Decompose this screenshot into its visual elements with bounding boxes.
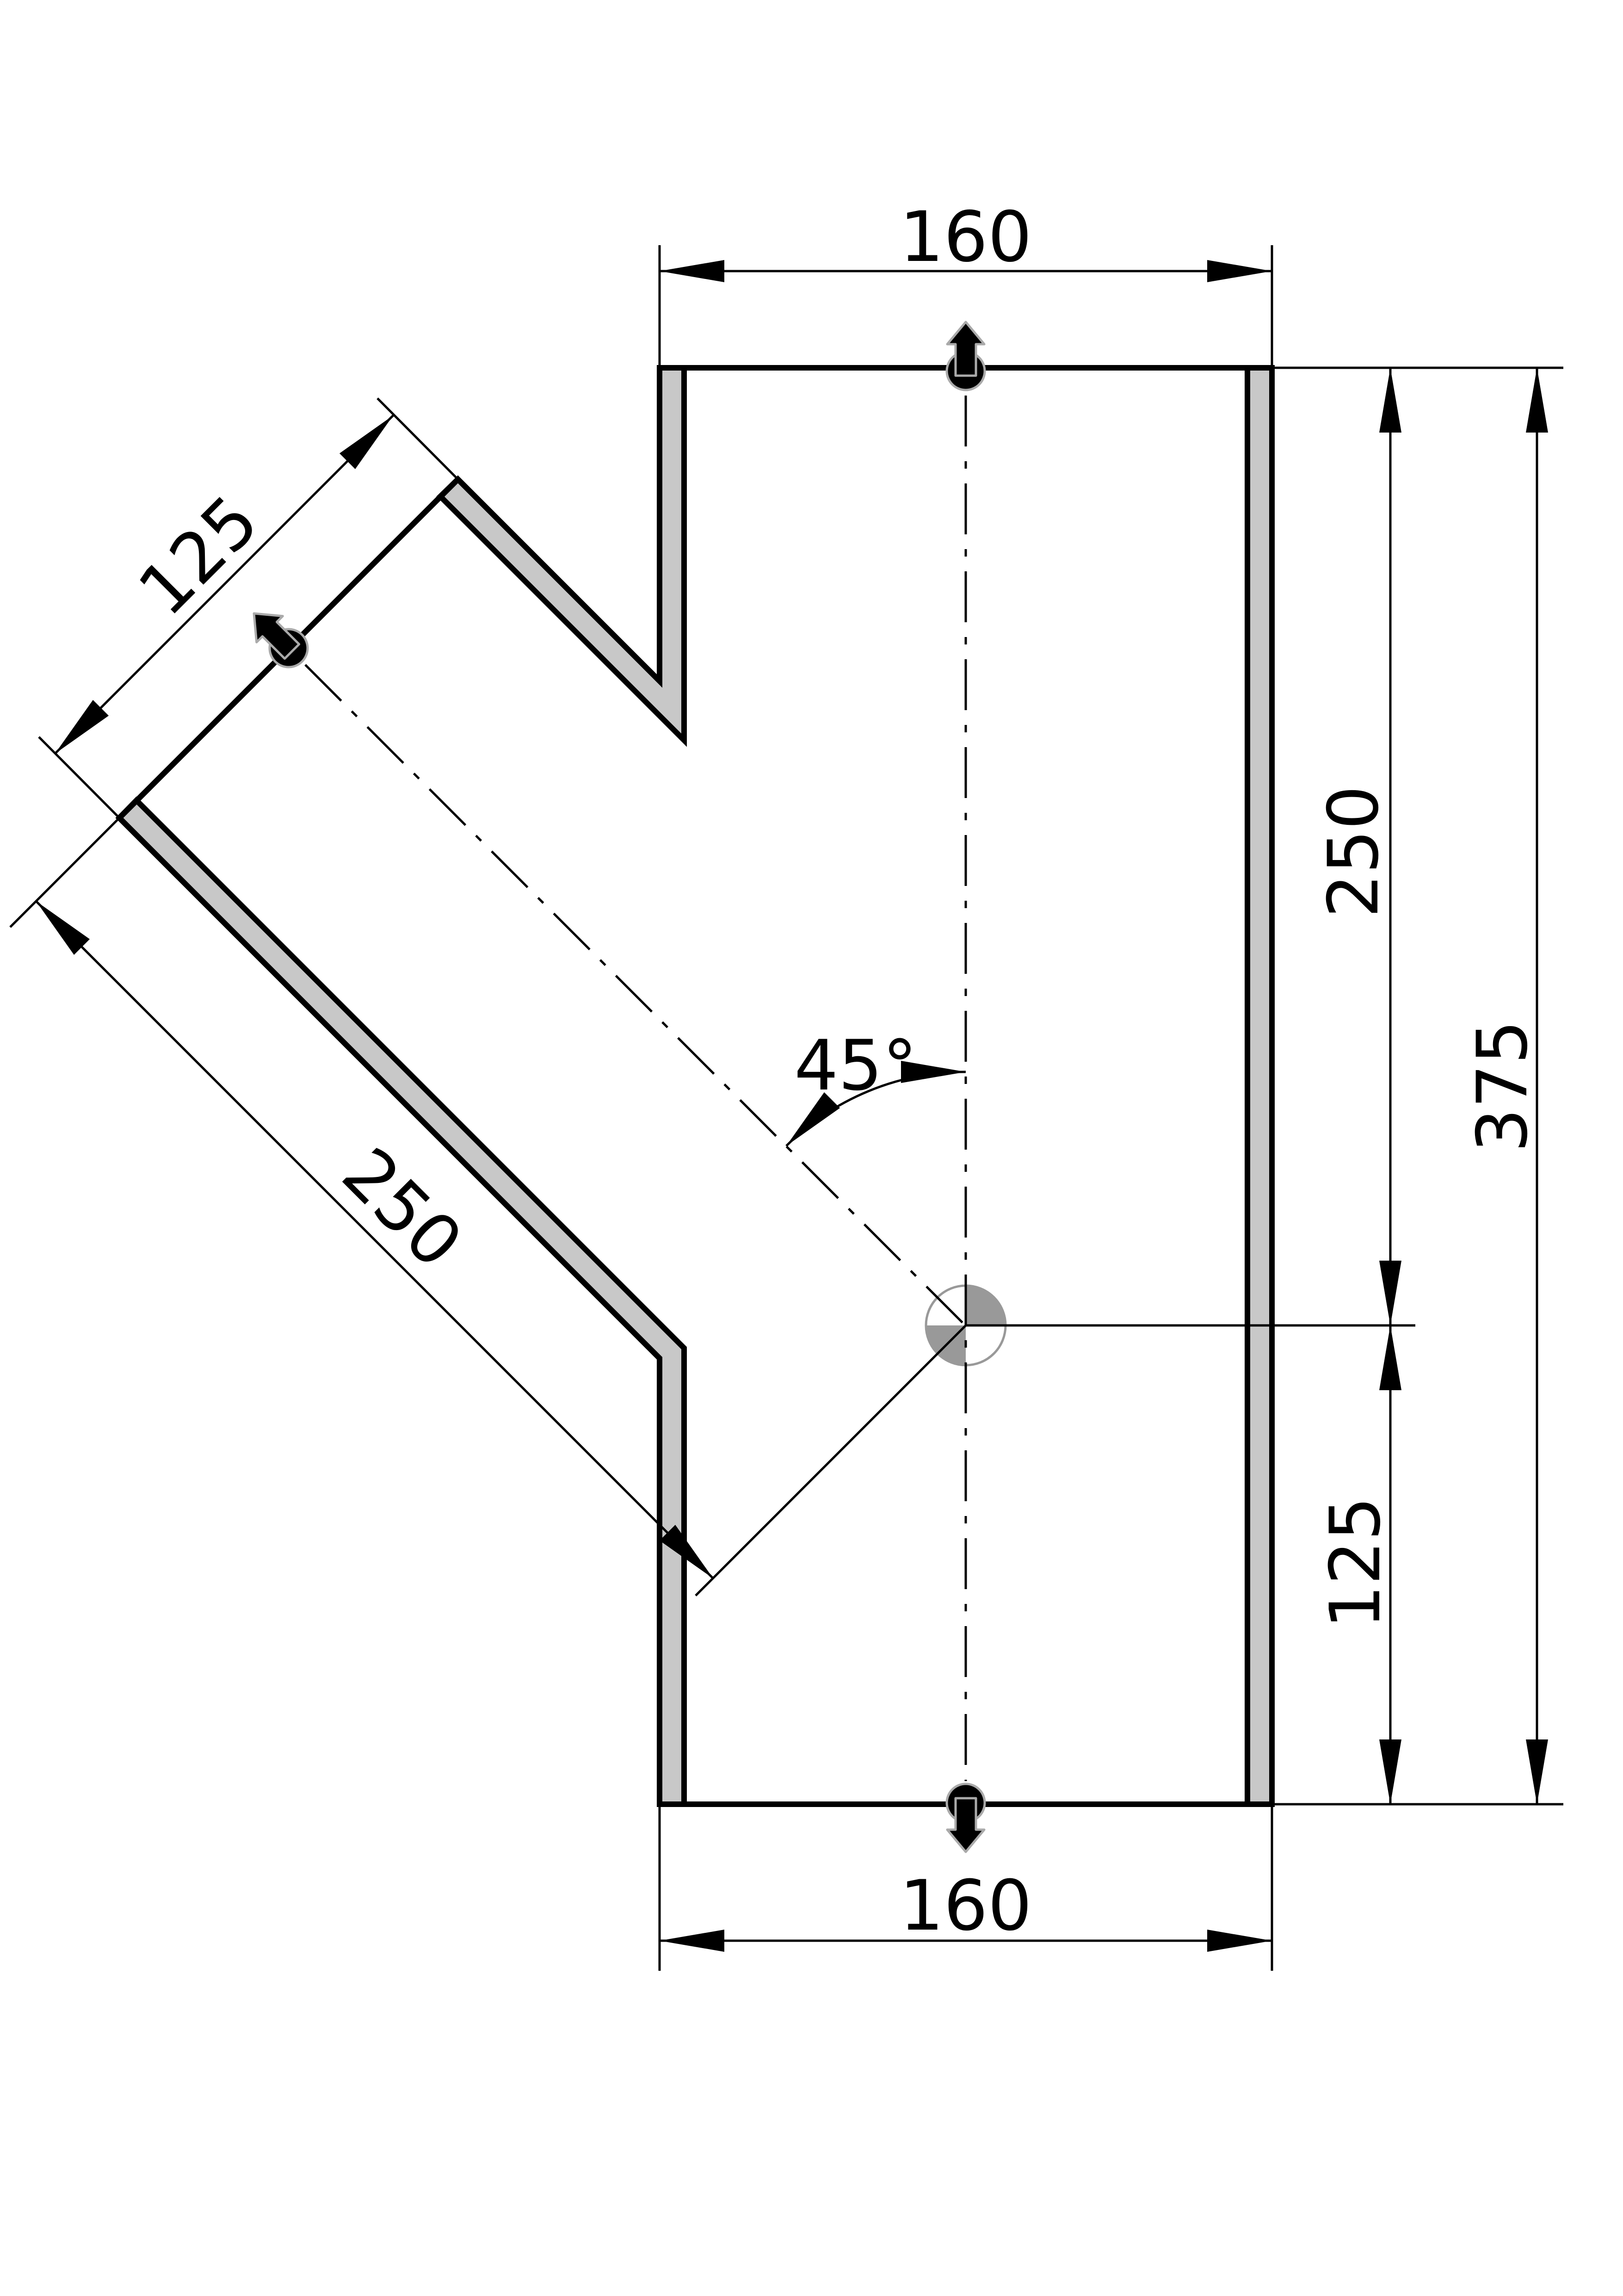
extension-line-mouth-face [10,818,119,927]
dim-branch-angle-label: 45° [794,1026,917,1106]
arrowhead-up [1379,368,1401,433]
arrowhead-right [1207,1930,1272,1952]
arrowhead-up [1379,1325,1401,1390]
wall-left-top [440,368,684,740]
flow-arrow-bottom [947,1784,985,1852]
extension-line-upper-edge [377,398,458,479]
arrowhead-left [660,260,724,282]
arrowhead-upper [339,415,393,469]
wall-left-bottom [119,800,684,1804]
arrowhead-down [1526,1739,1548,1804]
dim-top-width-label: 160 [900,197,1032,278]
dim-height-lower-label: 125 [1315,1497,1396,1629]
arrowhead-down [1379,1739,1401,1804]
arrowhead-upper [36,901,90,955]
dimension-right-side: 250 125 375 [1272,368,1563,1804]
wall-right [1247,368,1272,1804]
arrowhead-left [660,1930,724,1952]
dim-height-upper-label: 250 [1314,786,1394,918]
dim-height-total-label: 375 [1463,1020,1543,1152]
extension-line-lower-edge [39,737,119,818]
arrowhead-lower [55,700,109,754]
technical-drawing-wye-fitting: 160 160 250 125 375 125 [0,0,1623,2296]
dim-branch-width-label: 125 [123,481,274,631]
flow-arrow-branch [241,600,315,675]
arrowhead-right [1207,260,1272,282]
dimension-line [36,901,713,1578]
center-perpendicular-extension-line [696,1325,966,1596]
drawing-page: 160 160 250 125 375 125 [0,0,1623,2296]
dimension-branch-angle: 45° [786,1026,966,1146]
arrowhead-down [1379,1261,1401,1325]
pipe-walls [119,368,1272,1804]
dimension-branch-length: 250 [10,818,713,1578]
arrowhead-up [1526,368,1548,433]
flow-arrow-top [947,322,985,390]
fitting-outline [119,368,1272,1804]
dim-bottom-width-label: 160 [900,1866,1032,1946]
